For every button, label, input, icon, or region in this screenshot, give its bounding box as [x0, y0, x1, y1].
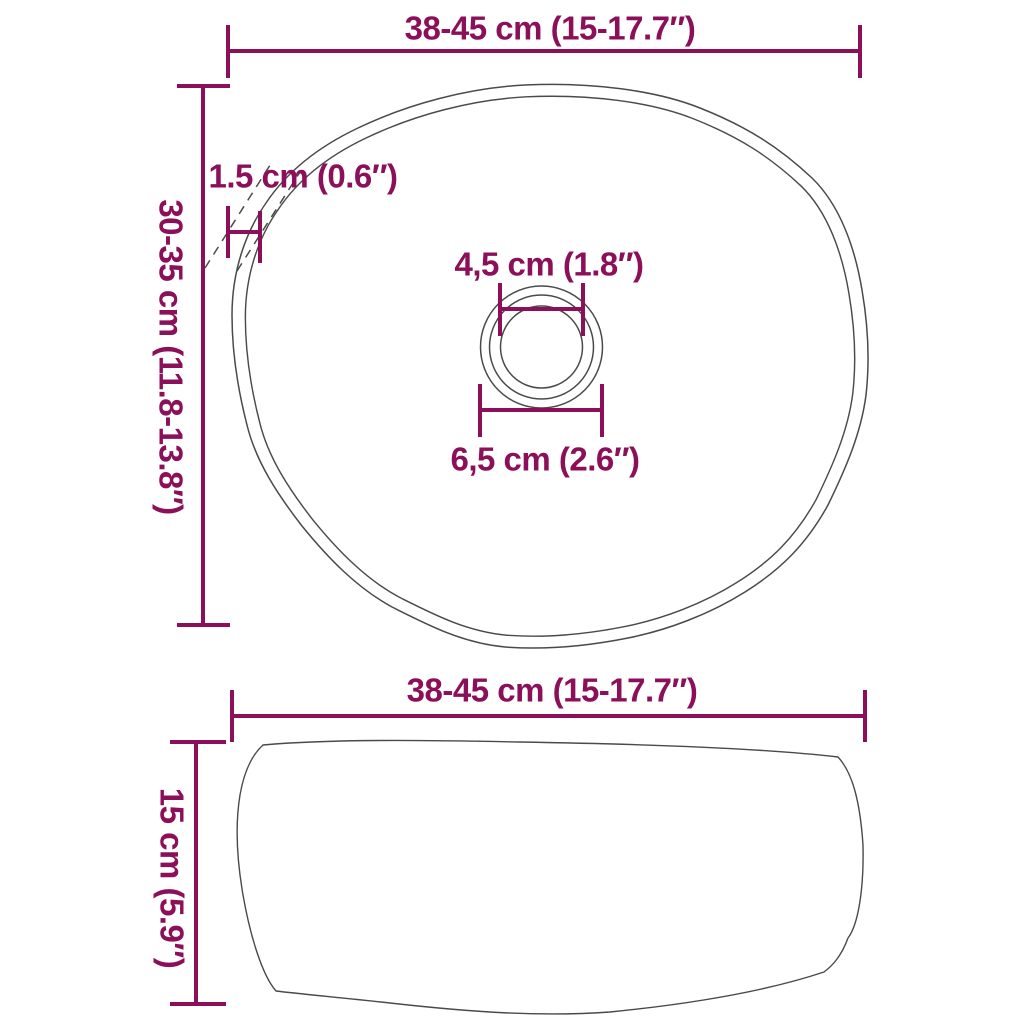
top-view-width-label: 38-45 cm (15-17.7″) [405, 12, 696, 45]
drain-outer-diameter-label: 6,5 cm (2.6″) [450, 443, 639, 476]
side-view-dimensions [170, 690, 865, 1004]
top-view-dimensions [177, 25, 860, 625]
basin-dimension-diagram: 38-45 cm (15-17.7″) 30-35 cm (11.8-13.8″… [0, 0, 1024, 1024]
drain-inner-circle [501, 306, 583, 388]
top-view-height-label: 30-35 cm (11.8-13.8″) [155, 199, 188, 514]
side-view [237, 740, 863, 1014]
side-view-width-label: 38-45 cm (15-17.7″) [407, 674, 698, 707]
drain-inner-diameter-label: 4,5 cm (1.8″) [454, 248, 643, 281]
side-view-depth-label: 15 cm (5.9″) [156, 788, 189, 968]
rim-thickness-label: 1.5 cm (0.6″) [208, 160, 397, 193]
side-profile-outline [237, 740, 863, 1014]
